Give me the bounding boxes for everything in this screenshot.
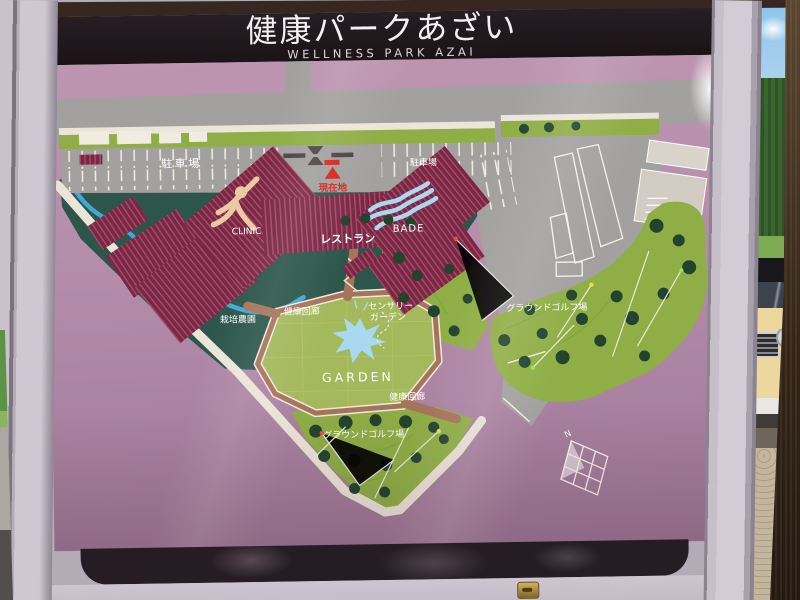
park-map: N 駐車場 駐車場 現在地 CLINIC レストラン BADE 栽培農園 健康回…: [47, 55, 725, 551]
right-frame-post: [704, 0, 762, 600]
frame-latch: [517, 582, 539, 599]
label-bade: BADE: [393, 223, 425, 234]
label-sensory-garden-2: ガーデン: [370, 311, 406, 324]
label-parking-east: 駐車場: [410, 156, 437, 168]
label-health-corridor-north: 健康回廊: [284, 305, 320, 318]
park-map-sign: 健康パークあざい WELLNESS PARK AZAI: [46, 0, 726, 600]
label-health-corridor-south: 健康回廊: [389, 390, 425, 403]
compass-north-label: N: [563, 429, 573, 441]
label-cultivation-farm: 栽培農園: [220, 313, 256, 326]
label-parking-west: 駐車場: [161, 156, 202, 171]
label-restaurant: レストラン: [320, 232, 375, 246]
label-clinic: CLINIC: [232, 227, 262, 237]
photo-of-park-map-sign: 健康パークあざい WELLNESS PARK AZAI: [0, 0, 800, 600]
compass-rose: N: [543, 419, 621, 506]
label-garden: GARDEN: [322, 369, 394, 385]
map-panel: N 駐車場 駐車場 現在地 CLINIC レストラン BADE 栽培農園 健康回…: [47, 55, 725, 551]
label-current-location: 現在地: [319, 182, 348, 194]
label-sensory-garden-1: センサリー: [368, 301, 413, 313]
